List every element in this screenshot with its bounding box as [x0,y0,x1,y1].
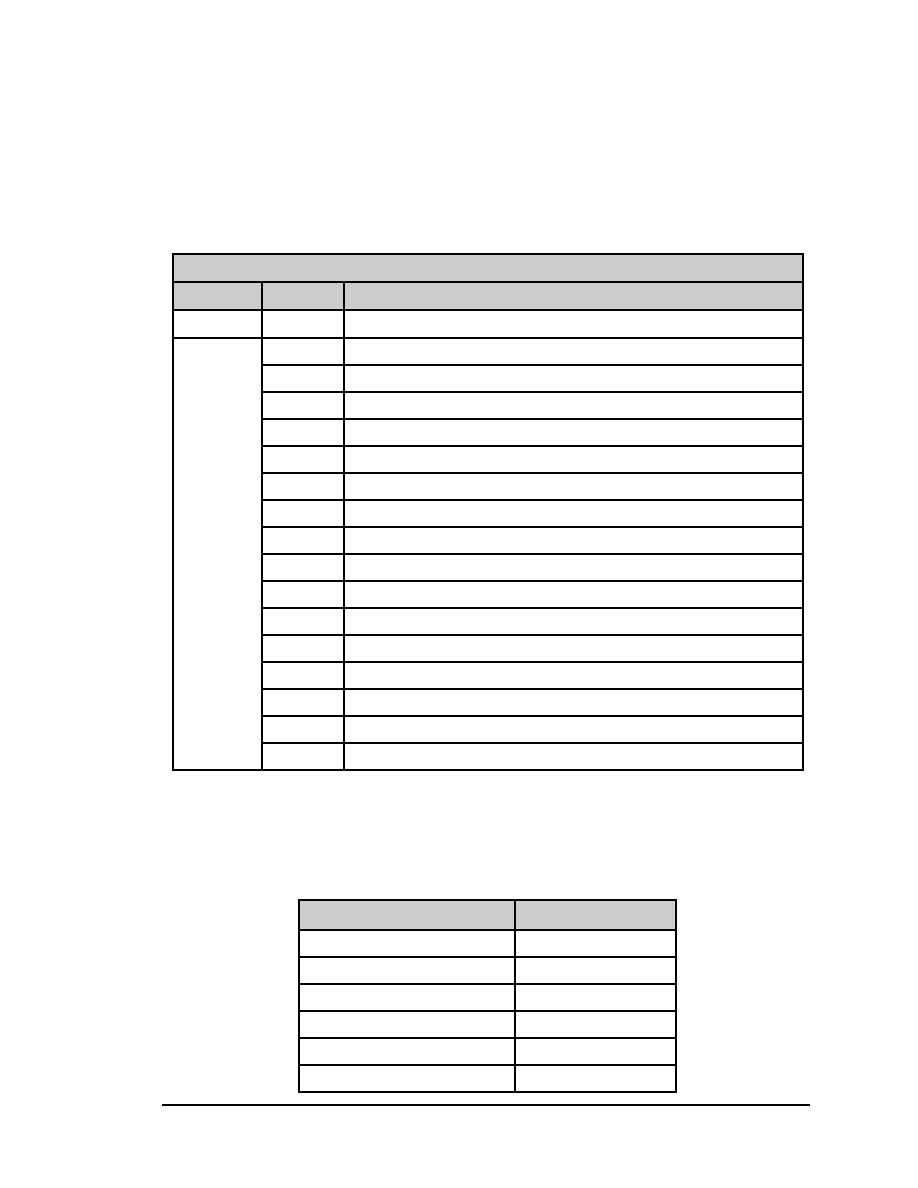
table-cell [344,338,803,365]
table-cell [262,554,344,581]
table-cell [262,581,344,608]
table-cell [344,662,803,689]
table-cell [262,419,344,446]
table-cell [515,1038,676,1065]
table-cell [344,473,803,500]
table-cell [262,743,344,770]
secondary-table [298,899,677,1093]
table-cell [262,338,344,365]
main-table-body-row [173,338,803,365]
secondary-table-body-row [299,984,676,1011]
main-table-body-row [173,527,803,554]
table-cell [299,930,515,957]
main-table-body-row [173,716,803,743]
table-cell [262,365,344,392]
secondary-table-header-row [299,900,676,930]
title-cell [173,254,803,282]
table-cell [262,500,344,527]
main-table-body-row [173,581,803,608]
main-table-body-row [173,689,803,716]
main-table-body-row [173,500,803,527]
table-cell [344,527,803,554]
secondary-table-body-row [299,930,676,957]
table-cell [344,310,803,338]
table-cell [262,662,344,689]
main-table-body-row [173,608,803,635]
table-cell [299,984,515,1011]
main-table-first-row [173,310,803,338]
table-cell [344,608,803,635]
table-cell [262,689,344,716]
main-table [172,253,804,771]
table-cell [344,419,803,446]
table-cell [344,716,803,743]
main-table-body-row [173,473,803,500]
table-cell [262,473,344,500]
document-page [0,0,918,1188]
table-cell [344,635,803,662]
table-cell [262,608,344,635]
header-cell [173,282,262,310]
table-cell [515,984,676,1011]
table-cell [515,1065,676,1092]
table-cell [344,689,803,716]
table-cell [344,743,803,770]
table-cell [262,716,344,743]
footer-rule [162,1104,810,1106]
secondary-table-body [299,900,676,1092]
table-cell [515,957,676,984]
table-cell [344,446,803,473]
table-cell [299,1038,515,1065]
merged-column-cell [173,338,262,770]
table-cell [262,635,344,662]
secondary-table-body-row [299,1038,676,1065]
table-cell [173,310,262,338]
table-cell [299,957,515,984]
main-table-body-row [173,635,803,662]
table-cell [262,446,344,473]
table-cell [299,1065,515,1092]
header-cell [344,282,803,310]
secondary-table-body-row [299,1065,676,1092]
header-cell [262,282,344,310]
table-cell [515,1011,676,1038]
main-table-body [173,254,803,770]
main-table-body-row [173,392,803,419]
main-table-body-row [173,743,803,770]
main-table-body-row [173,419,803,446]
table-cell [344,581,803,608]
table-cell [262,310,344,338]
table-cell [344,392,803,419]
main-table-body-row [173,662,803,689]
table-cell [344,365,803,392]
header-cell [299,900,515,930]
secondary-table-body-row [299,1011,676,1038]
main-table-body-row [173,554,803,581]
main-table-body-row [173,446,803,473]
table-cell [299,1011,515,1038]
table-cell [262,392,344,419]
table-cell [262,527,344,554]
table-cell [515,930,676,957]
table-cell [344,554,803,581]
header-cell [515,900,676,930]
main-table-body-row [173,365,803,392]
secondary-table-body-row [299,957,676,984]
main-table-header-row [173,282,803,310]
table-cell [344,500,803,527]
main-table-title-row [173,254,803,282]
